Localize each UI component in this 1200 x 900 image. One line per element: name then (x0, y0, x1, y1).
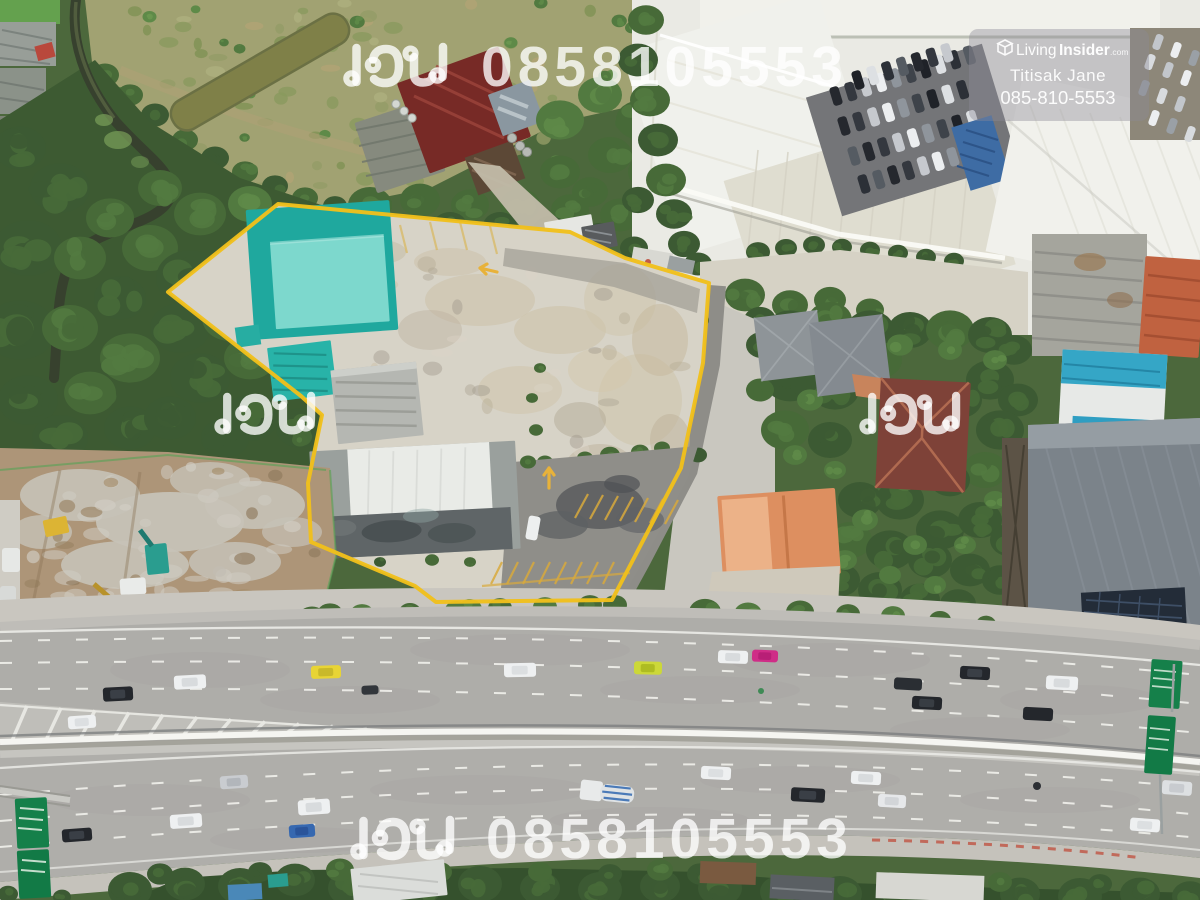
svg-text:0858105553: 0858105553 (481, 35, 848, 99)
svg-text:.com: .com (1110, 47, 1128, 57)
svg-text:Titisak Jane: Titisak Jane (1010, 66, 1106, 85)
svg-text:Living: Living (1016, 42, 1057, 59)
svg-text:0858105553: 0858105553 (486, 807, 853, 871)
svg-text:Insider: Insider (1059, 42, 1110, 59)
svg-text:085-810-5553: 085-810-5553 (1000, 87, 1115, 108)
